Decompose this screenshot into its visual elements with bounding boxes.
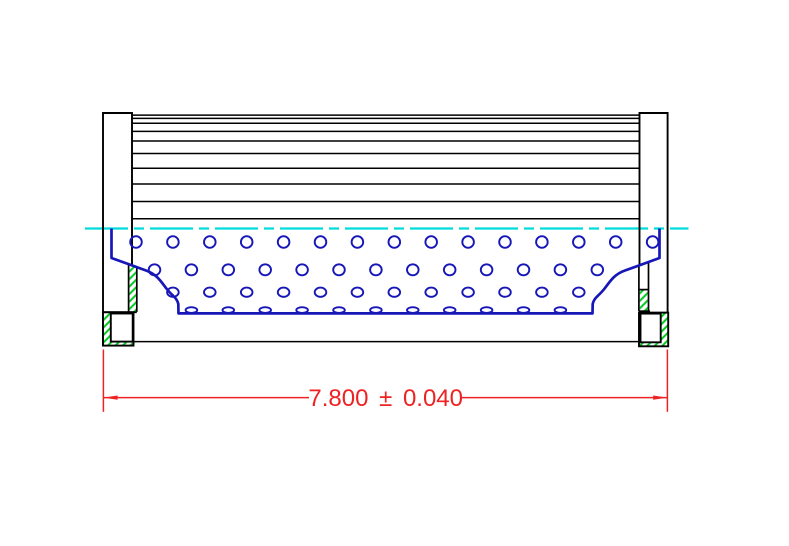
svg-text:7.800 ± 0.040: 7.800 ± 0.040 — [308, 385, 463, 412]
